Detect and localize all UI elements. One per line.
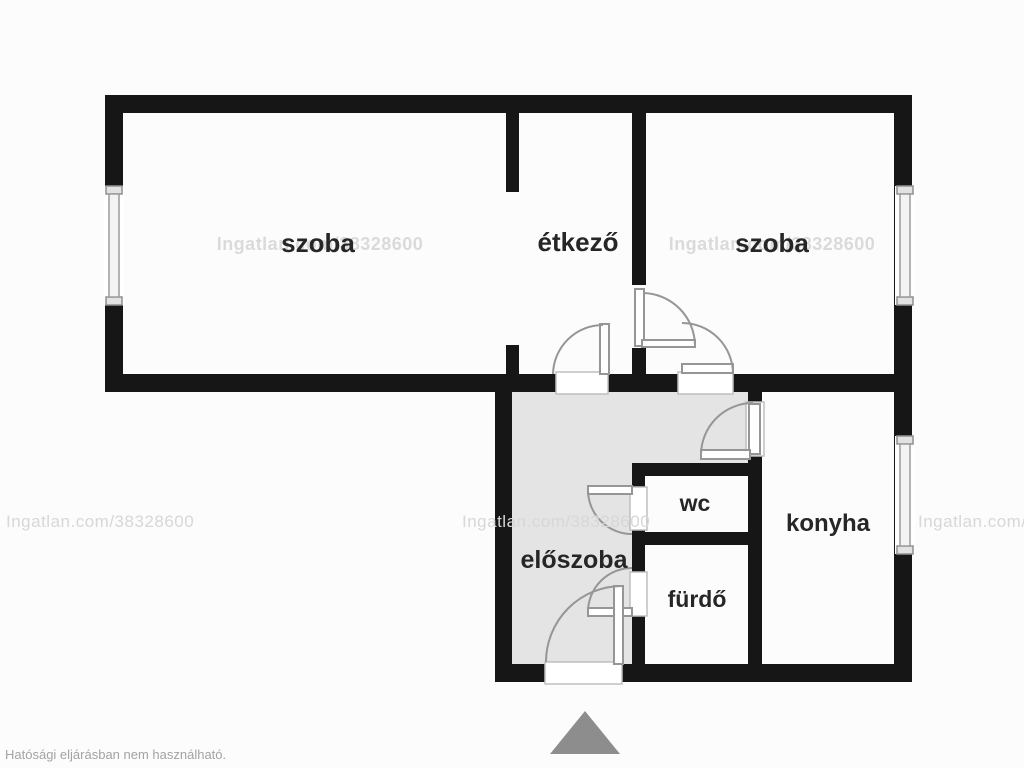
door-leaf-open xyxy=(642,340,695,347)
north-arrow-icon xyxy=(550,711,620,754)
watermark-row-right: Ingatlan.com/38328600 xyxy=(918,512,1024,531)
door-opening-szoba-right xyxy=(678,372,733,394)
door-leaf-open xyxy=(701,450,750,459)
door-leaf xyxy=(588,486,632,494)
window-glass xyxy=(900,194,910,297)
room-label-eloszoba: előszoba xyxy=(521,546,629,574)
wall-wc-top xyxy=(632,463,762,476)
door-swing-arc xyxy=(553,325,603,374)
wall-divider-szoba-etkezo-top xyxy=(506,95,519,192)
door-leaf xyxy=(682,364,733,373)
window-szoba-left xyxy=(104,186,124,305)
door-leaf xyxy=(614,586,623,664)
walls xyxy=(105,95,912,682)
window-glass xyxy=(900,444,910,546)
door-leaf xyxy=(635,289,644,346)
wall-bottom-upper-left xyxy=(105,374,520,392)
room-label-wc: wc xyxy=(679,490,711,516)
wall-bottom-mid-2 xyxy=(608,374,678,392)
watermark-row-center: Ingatlan.com/38328600 xyxy=(462,512,650,531)
wall-bottom-mid-1 xyxy=(520,374,556,392)
room-label-etkezo: étkező xyxy=(538,227,619,257)
window-szoba-right xyxy=(895,186,915,305)
wall-wc-bath-divider xyxy=(632,532,762,545)
door-etkezo-eloszoba xyxy=(553,324,609,374)
room-label-szoba-left: szoba xyxy=(281,228,355,258)
window-cap xyxy=(106,297,122,305)
window-cap xyxy=(897,186,913,194)
door-etkezo-szoba xyxy=(635,289,695,347)
window-cap xyxy=(897,297,913,305)
door-leaf xyxy=(600,324,609,374)
door-opening-etkezo xyxy=(556,372,608,394)
window-konyha xyxy=(895,436,915,554)
door-opening-entrance xyxy=(545,662,622,684)
window-glass xyxy=(109,194,119,297)
watermark-row-left: Ingatlan.com/38328600 xyxy=(6,512,194,531)
room-label-furdo: fürdő xyxy=(668,586,727,612)
window-cap xyxy=(897,436,913,444)
floorplan-drawing: Ingatlan.com/38328600 Ingatlan.com/38328… xyxy=(0,0,1024,768)
door-szoba-eloszoba xyxy=(682,323,733,374)
window-cap xyxy=(897,546,913,554)
door-leaf xyxy=(749,404,760,454)
room-label-konyha: konyha xyxy=(786,510,871,537)
disclaimer-text: Hatósági eljárásban nem használható. xyxy=(5,747,226,762)
wall-divider-etkezo-szoba-right xyxy=(632,95,646,285)
window-cap xyxy=(106,186,122,194)
wall-bottom-mid-right xyxy=(733,374,912,392)
floorplan: Ingatlan.com/38328600 Ingatlan.com/38328… xyxy=(0,0,1024,768)
door-leaf xyxy=(588,608,632,616)
room-label-szoba-right: szoba xyxy=(735,228,809,258)
door-swing-arc xyxy=(643,293,695,345)
